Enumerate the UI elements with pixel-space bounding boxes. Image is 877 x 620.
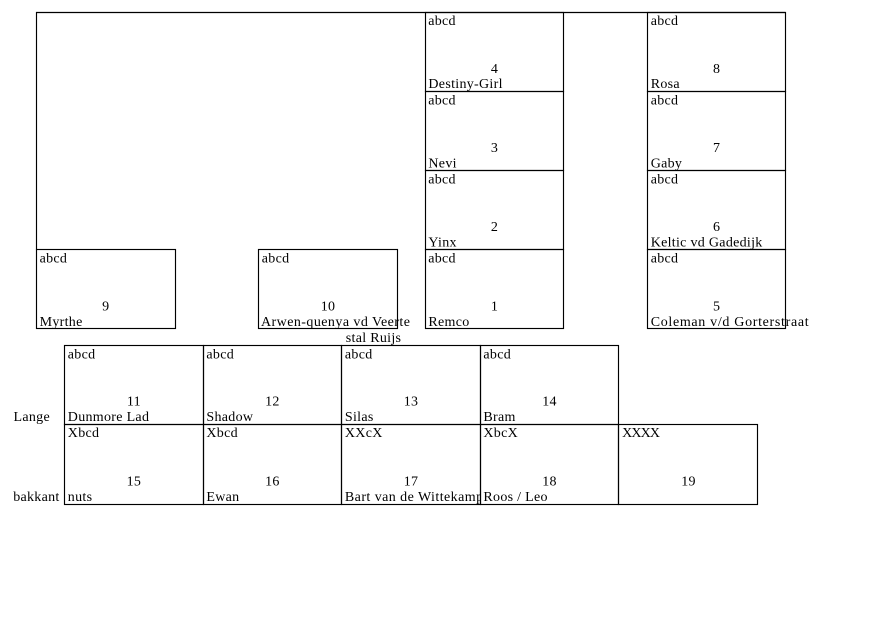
svg-text:Xbcd: Xbcd <box>68 426 100 441</box>
svg-text:14: 14 <box>542 395 557 410</box>
svg-text:abcd: abcd <box>40 252 68 267</box>
svg-text:Lange: Lange <box>14 410 50 425</box>
svg-text:8: 8 <box>713 62 720 77</box>
svg-text:abcd: abcd <box>483 348 511 363</box>
svg-text:1: 1 <box>491 299 498 314</box>
svg-text:7: 7 <box>713 141 720 156</box>
svg-text:abcd: abcd <box>428 252 456 267</box>
svg-text:11: 11 <box>127 395 141 410</box>
svg-text:abcd: abcd <box>428 14 456 29</box>
svg-text:Silas: Silas <box>345 410 374 425</box>
svg-text:XXXX: XXXX <box>622 426 660 441</box>
svg-text:stal Ruijs: stal Ruijs <box>346 331 402 346</box>
svg-text:abcd: abcd <box>428 93 456 108</box>
svg-text:Gaby: Gaby <box>651 156 683 171</box>
svg-text:abcd: abcd <box>428 173 456 188</box>
svg-text:Roos / Leo: Roos / Leo <box>483 490 547 505</box>
svg-text:Xbcd: Xbcd <box>206 426 238 441</box>
svg-text:2: 2 <box>491 220 498 235</box>
svg-text:Coleman v/d Gorterstraat: Coleman v/d Gorterstraat <box>651 315 810 330</box>
svg-text:Ewan: Ewan <box>206 490 239 505</box>
svg-text:13: 13 <box>404 395 419 410</box>
svg-text:abcd: abcd <box>651 93 679 108</box>
svg-text:Yinx: Yinx <box>428 236 456 251</box>
svg-text:Nevi: Nevi <box>428 156 456 171</box>
svg-text:Dunmore Lad: Dunmore Lad <box>68 410 149 425</box>
svg-text:XbcX: XbcX <box>483 426 518 441</box>
svg-text:bakkant: bakkant <box>13 490 59 505</box>
svg-text:Arwen-quenya vd Veerte: Arwen-quenya vd Veerte <box>261 315 410 330</box>
svg-text:abcd: abcd <box>206 348 234 363</box>
svg-text:10: 10 <box>321 299 336 314</box>
svg-text:nuts: nuts <box>68 490 93 505</box>
svg-text:abcd: abcd <box>68 348 96 363</box>
svg-text:Bram: Bram <box>483 410 515 425</box>
svg-text:abcd: abcd <box>262 252 290 267</box>
svg-text:15: 15 <box>127 475 142 490</box>
svg-text:16: 16 <box>265 475 280 490</box>
svg-text:Bart van de Wittekamp: Bart van de Wittekamp <box>345 490 484 505</box>
svg-text:4: 4 <box>491 62 498 77</box>
svg-text:abcd: abcd <box>651 14 679 29</box>
svg-text:XXcX: XXcX <box>345 426 383 441</box>
svg-text:Destiny-Girl: Destiny-Girl <box>428 77 502 92</box>
svg-text:5: 5 <box>713 299 720 314</box>
svg-text:19: 19 <box>681 475 696 490</box>
svg-text:abcd: abcd <box>651 173 679 188</box>
svg-text:18: 18 <box>542 475 557 490</box>
svg-text:Keltic vd Gadedijk: Keltic vd Gadedijk <box>651 236 763 251</box>
svg-text:Myrthe: Myrthe <box>40 315 83 330</box>
svg-text:Rosa: Rosa <box>651 77 681 92</box>
svg-text:9: 9 <box>102 299 109 314</box>
svg-text:12: 12 <box>265 395 280 410</box>
svg-text:6: 6 <box>713 220 720 235</box>
svg-text:abcd: abcd <box>651 252 679 267</box>
svg-text:abcd: abcd <box>345 348 373 363</box>
svg-text:Shadow: Shadow <box>206 410 253 425</box>
svg-text:17: 17 <box>404 475 419 490</box>
svg-text:3: 3 <box>491 141 498 156</box>
svg-text:Remco: Remco <box>428 315 469 330</box>
